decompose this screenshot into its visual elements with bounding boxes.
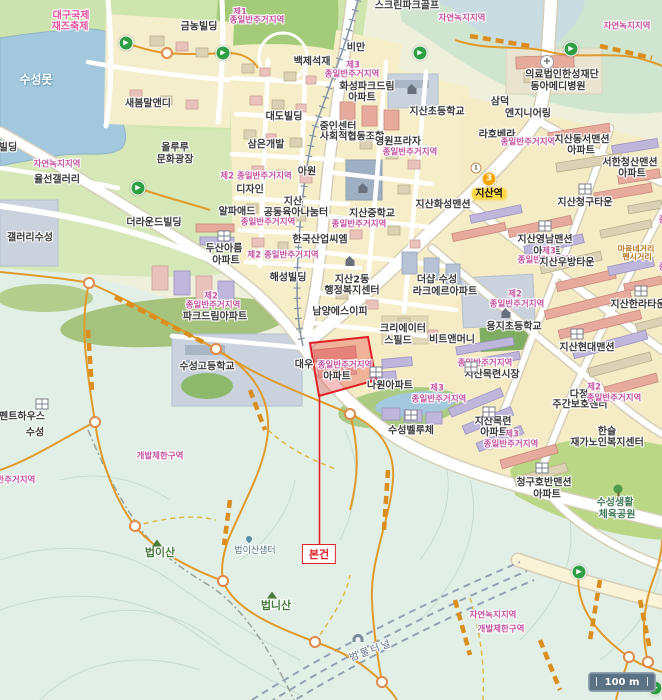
- building-footprint: [350, 230, 362, 239]
- building-footprint: [196, 224, 234, 232]
- building-footprint: [290, 138, 302, 147]
- subject-label-box: 본건: [302, 544, 336, 564]
- building-footprint: [152, 266, 168, 290]
- building-footprint: [250, 96, 262, 105]
- building-footprint: [424, 258, 439, 280]
- building-footprint: [174, 271, 190, 295]
- building-footprint: [176, 42, 188, 51]
- building-footprint: [410, 240, 420, 248]
- scale-bar: 100 m: [588, 672, 656, 692]
- building-footprint: [360, 140, 372, 149]
- building-footprint: [300, 174, 312, 183]
- building-footprint: [246, 204, 258, 213]
- building-footprint: [340, 102, 355, 122]
- building-footprint: [266, 134, 276, 142]
- building-footprint: [426, 412, 442, 424]
- map-base-graphics: [0, 0, 662, 700]
- building-footprint: [278, 242, 288, 250]
- building-footprint: [196, 276, 212, 300]
- building-footprint: [366, 300, 378, 309]
- building-footprint: [446, 264, 460, 284]
- building-footprint: [200, 237, 234, 245]
- building-footprint: [296, 104, 306, 112]
- building-footprint: [398, 318, 410, 327]
- building-footprint: [196, 48, 208, 57]
- building-footprint: [272, 100, 284, 109]
- building-footprint: [130, 90, 142, 99]
- map-canvas[interactable]: 대구국제재즈축제수성못금농빌딩새봄말앤디백제석재비만스크린파크골프자연녹지지역자…: [0, 0, 662, 700]
- building-footprint: [336, 290, 348, 299]
- building-footprint: [404, 410, 422, 422]
- building-footprint: [524, 71, 574, 83]
- building-footprint: [270, 208, 280, 216]
- building-footprint: [398, 185, 410, 194]
- building-footprint: [160, 96, 172, 105]
- building-footprint: [384, 110, 399, 130]
- building-footprint: [242, 64, 254, 73]
- building-footprint: [428, 330, 438, 338]
- building-footprint: [306, 76, 316, 84]
- building-footprint: [252, 238, 264, 247]
- building-footprint: [418, 200, 428, 208]
- building-footprint: [150, 36, 164, 46]
- building-footprint: [388, 226, 400, 235]
- building-footprint: [252, 166, 264, 175]
- building-footprint: [402, 252, 417, 274]
- building-footprint: [284, 72, 296, 81]
- building-footprint: [218, 281, 234, 305]
- building-footprint: [516, 55, 574, 69]
- building-footprint: [186, 100, 198, 109]
- building-footprint: [294, 212, 306, 221]
- building-footprint: [408, 160, 420, 169]
- building-footprint: [382, 408, 400, 420]
- building-footprint: [244, 130, 256, 139]
- building-footprint: [362, 106, 377, 126]
- building-footprint: [386, 150, 398, 159]
- building-footprint: [340, 120, 352, 129]
- building-footprint: [260, 68, 270, 76]
- building-footprint: [276, 170, 286, 178]
